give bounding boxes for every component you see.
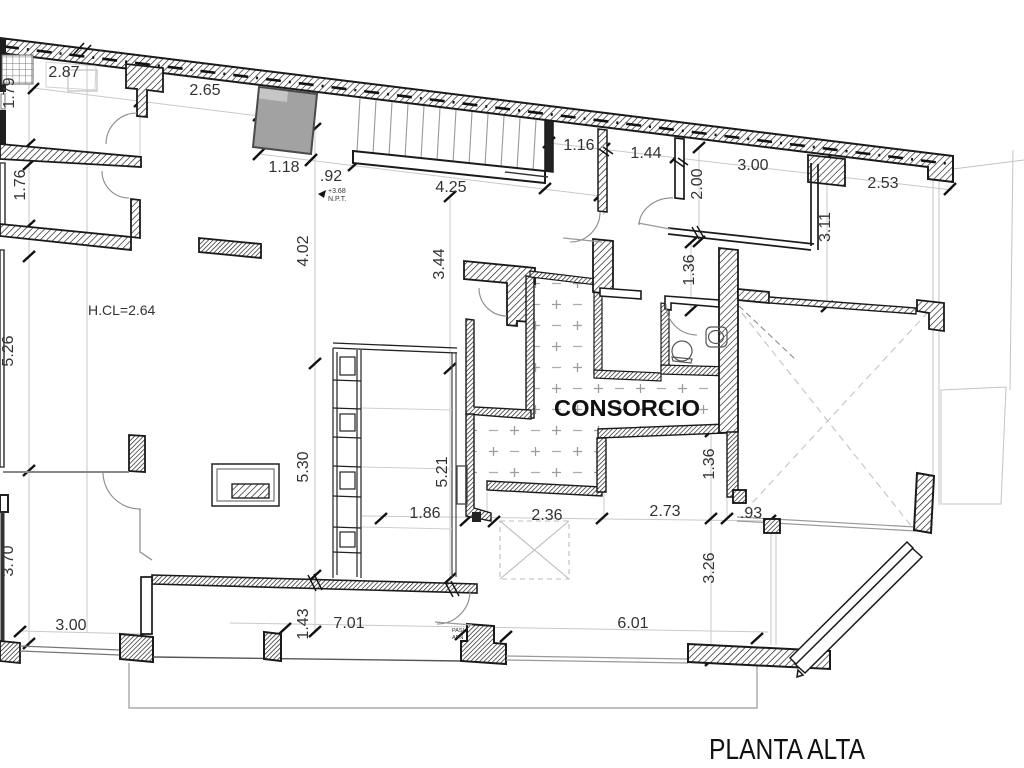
svg-text:2.36: 2.36 [531, 507, 562, 524]
svg-text:H.CL=2.64: H.CL=2.64 [88, 302, 156, 318]
svg-text:3.70: 3.70 [0, 545, 17, 576]
svg-text:3.11: 3.11 [817, 212, 834, 242]
svg-text:1.18: 1.18 [268, 159, 299, 176]
svg-text:+3.68: +3.68 [328, 188, 346, 195]
svg-text:1.43: 1.43 [295, 608, 312, 639]
svg-text:1.36: 1.36 [681, 254, 698, 285]
svg-text:3.00: 3.00 [737, 157, 768, 174]
svg-text:6.01: 6.01 [617, 615, 648, 632]
svg-text:2.00: 2.00 [689, 168, 706, 199]
svg-text:3.26: 3.26 [701, 552, 718, 583]
svg-text:1.36: 1.36 [701, 448, 718, 479]
svg-text:1.16: 1.16 [563, 137, 594, 154]
svg-text:1.76: 1.76 [12, 169, 29, 200]
svg-text:1.86: 1.86 [409, 505, 440, 522]
svg-text:1.79: 1.79 [1, 77, 18, 108]
svg-text:4.25: 4.25 [435, 179, 466, 196]
svg-text:2.65: 2.65 [189, 82, 220, 99]
svg-text:2.87: 2.87 [48, 64, 79, 81]
svg-text:3.00: 3.00 [55, 617, 86, 634]
svg-text:3.44: 3.44 [431, 248, 448, 279]
svg-text:PASI: PASI [452, 628, 465, 634]
svg-text:.93: .93 [740, 505, 762, 522]
svg-text:2.73: 2.73 [649, 503, 680, 520]
svg-text:.92: .92 [320, 168, 342, 185]
svg-text:PLANTA ALTA: PLANTA ALTA [709, 734, 866, 766]
svg-text:CONSORCIO: CONSORCIO [554, 395, 700, 421]
svg-text:7.01: 7.01 [333, 615, 364, 632]
svg-text:N.P.T.: N.P.T. [328, 196, 346, 203]
svg-text:1.44: 1.44 [630, 145, 661, 162]
svg-text:5.26: 5.26 [0, 335, 17, 366]
svg-text:5.21: 5.21 [434, 456, 451, 487]
svg-text:APN: APN [452, 635, 463, 641]
svg-text:2.53: 2.53 [867, 175, 898, 192]
svg-text:5.30: 5.30 [295, 451, 312, 482]
svg-text:4.02: 4.02 [295, 235, 312, 266]
